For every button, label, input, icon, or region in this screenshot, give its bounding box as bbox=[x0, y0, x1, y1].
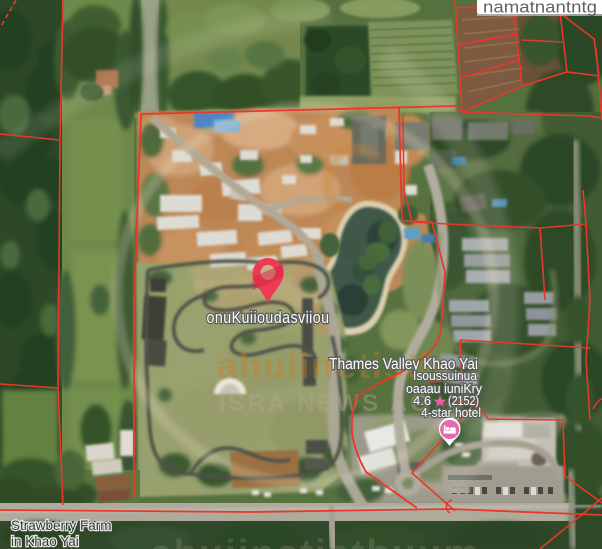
svg-text:namatnantntg: namatnantntg bbox=[483, 0, 597, 17]
svg-text:Strawberry Farm: Strawberry Farm bbox=[11, 518, 112, 533]
svg-text:in Khao Yai: in Khao Yai bbox=[11, 534, 79, 549]
svg-text:ISRA NEWS AG: ISRA NEWS AG bbox=[219, 390, 432, 417]
svg-text:onuKuiioudasviiou: onuKuiioudasviiou bbox=[207, 309, 330, 327]
svg-text:ahuiinetisthuum: ahuiinetisthuum bbox=[150, 533, 480, 549]
